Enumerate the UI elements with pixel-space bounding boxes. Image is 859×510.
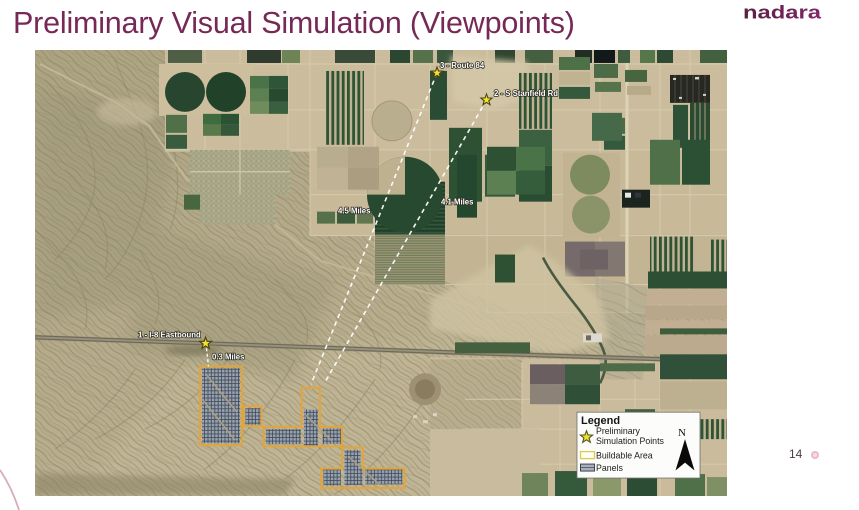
svg-text:Preliminary: Preliminary <box>596 426 641 436</box>
svg-text:4.1 Miles: 4.1 Miles <box>441 198 474 207</box>
svg-text:0.3 Miles: 0.3 Miles <box>212 352 245 361</box>
svg-text:nadara: nadara <box>743 3 822 23</box>
svg-text:Buildable Area: Buildable Area <box>596 451 653 461</box>
svg-text:4.5 Miles: 4.5 Miles <box>338 207 371 216</box>
svg-text:1 - I-8 Eastbound: 1 - I-8 Eastbound <box>138 330 201 339</box>
svg-text:3 - Route 84: 3 - Route 84 <box>440 61 485 70</box>
svg-text:2 - S Stanfield Rd: 2 - S Stanfield Rd <box>494 89 558 98</box>
svg-text:Panels: Panels <box>596 463 623 473</box>
svg-text:Simulation Points: Simulation Points <box>596 436 665 446</box>
svg-text:N: N <box>678 427 686 439</box>
